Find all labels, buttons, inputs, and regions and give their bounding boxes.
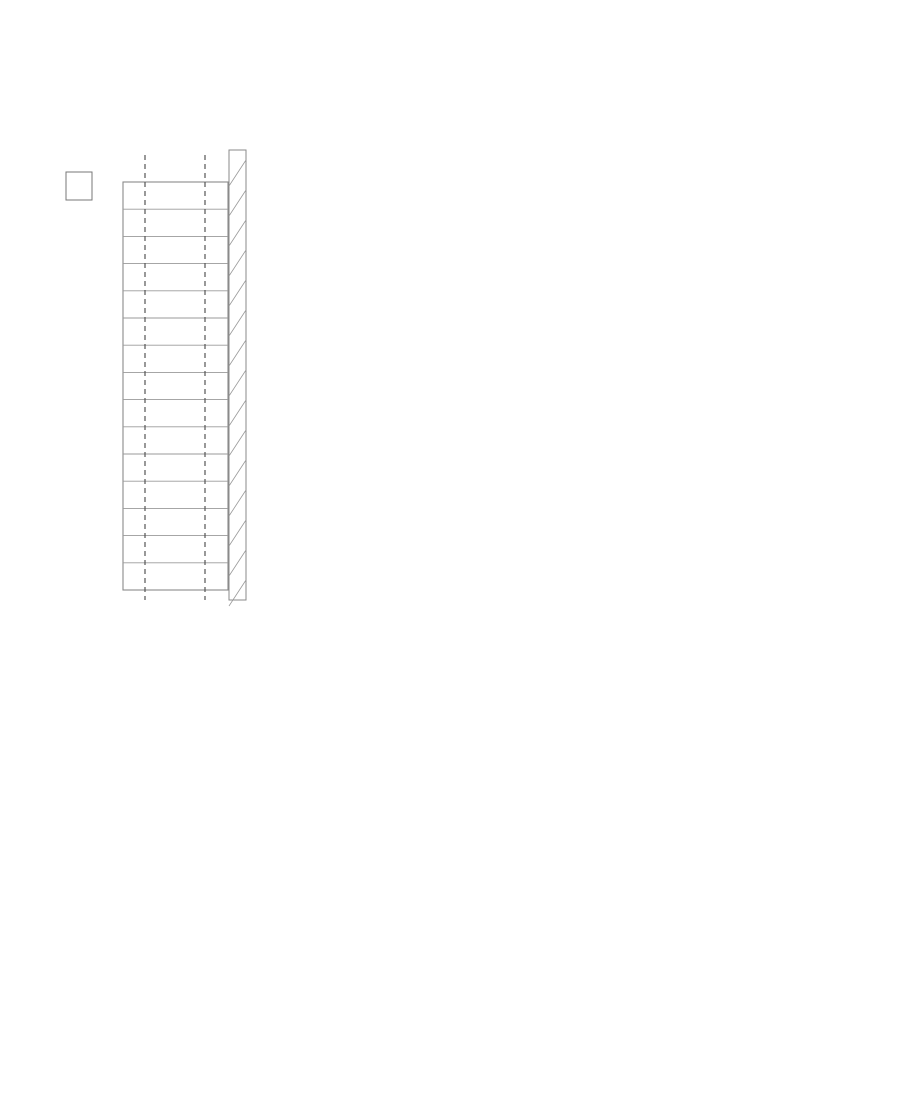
floor-plan-graphics (0, 0, 922, 1117)
floor-plan (0, 0, 922, 1117)
furniture-layer (66, 150, 246, 606)
